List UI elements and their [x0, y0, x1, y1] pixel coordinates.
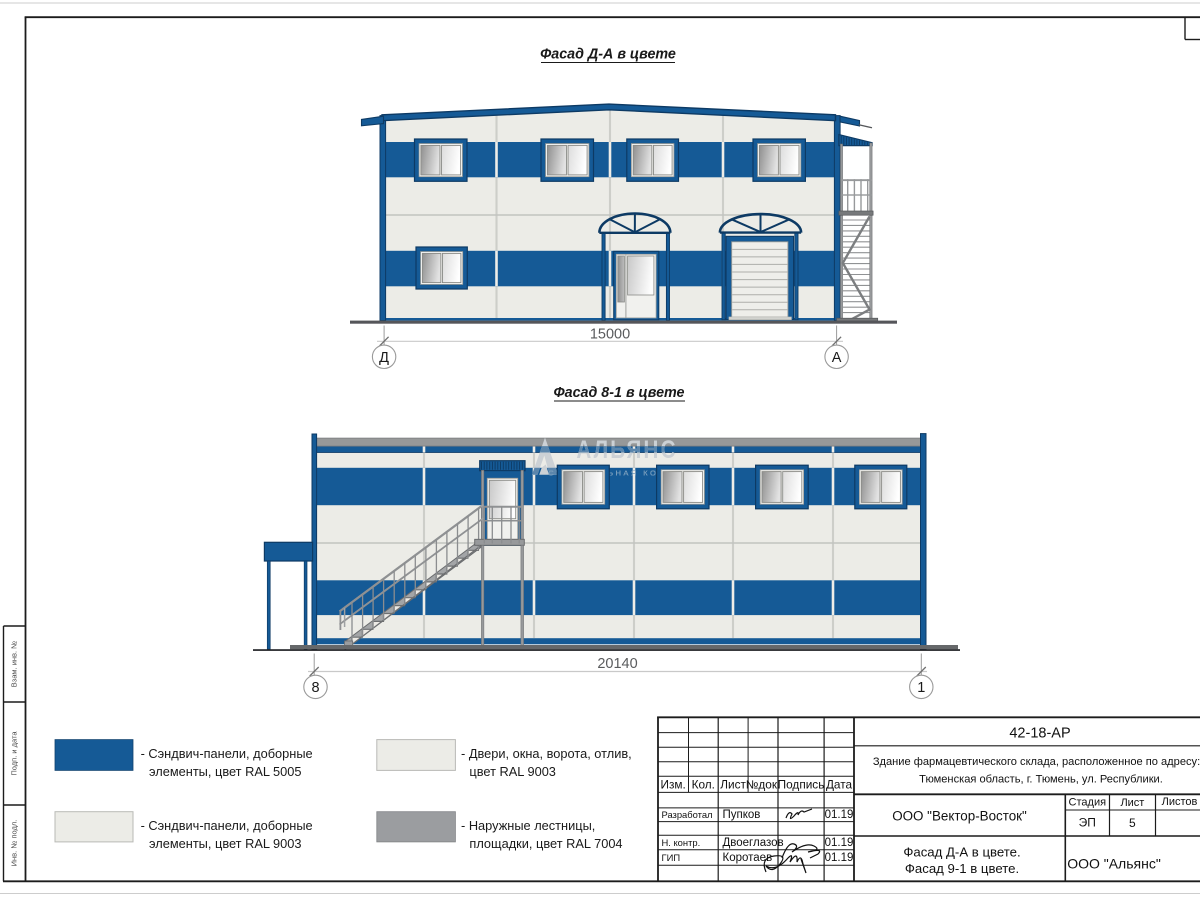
svg-text:01.19: 01.19: [825, 852, 854, 864]
svg-text:Фасад Д-А в цвете: Фасад Д-А в цвете: [540, 47, 676, 63]
svg-text:Инв. № подл.: Инв. № подл.: [9, 820, 18, 867]
svg-text:Листов: Листов: [1162, 796, 1198, 808]
svg-text:элементы, цвет RAL 9003: элементы, цвет RAL 9003: [149, 836, 302, 851]
svg-text:- Двери, окна, ворота, отлив,: - Двери, окна, ворота, отлив,: [461, 746, 632, 761]
svg-text:Тюменская область, г. Тюмень,: Тюменская область, г. Тюмень, ул. Респуб…: [919, 774, 1163, 786]
svg-text:01.19: 01.19: [825, 837, 854, 849]
svg-text:Фасад Д-А в цвете.: Фасад Д-А в цвете.: [903, 845, 1020, 860]
svg-text:Лист: Лист: [1120, 797, 1144, 809]
svg-text:01.19: 01.19: [825, 809, 854, 821]
svg-text:1: 1: [917, 680, 925, 696]
svg-text:ООО "Альянс": ООО "Альянс": [1067, 856, 1161, 872]
svg-text:Взам. инв. №: Взам. инв. №: [9, 641, 18, 687]
svg-text:42-18-АР: 42-18-АР: [1009, 726, 1070, 742]
svg-text:15000: 15000: [590, 326, 630, 342]
svg-text:Разработал: Разработал: [662, 809, 713, 820]
svg-text:Подп. и дата: Подп. и дата: [9, 731, 18, 776]
svg-text:Кол.: Кол.: [692, 778, 715, 792]
svg-text:элементы, цвет RAL 5005: элементы, цвет RAL 5005: [149, 764, 302, 779]
svg-text:Пупков: Пупков: [723, 809, 761, 821]
svg-text:- Сэндвич-панели, доборные: - Сэндвич-панели, доборные: [141, 818, 313, 833]
svg-text:Здание фармацевтического склад: Здание фармацевтического склада, располо…: [873, 756, 1200, 768]
svg-text:5: 5: [1129, 816, 1136, 830]
svg-text:Лист: Лист: [720, 778, 746, 792]
svg-text:площадки, цвет RAL 7004: площадки, цвет RAL 7004: [469, 836, 622, 851]
svg-text:Н. контр.: Н. контр.: [662, 837, 701, 848]
svg-text:20140: 20140: [597, 656, 637, 672]
svg-text:ЭП: ЭП: [1079, 816, 1096, 830]
svg-text:Изм.: Изм.: [661, 778, 686, 792]
svg-text:Двоеглазов: Двоеглазов: [723, 837, 784, 849]
svg-text:Дата: Дата: [826, 778, 853, 792]
svg-text:- Наружные лестницы,: - Наружные лестницы,: [461, 818, 595, 833]
svg-text:№док.: №док.: [746, 778, 781, 792]
svg-text:Подпись: Подпись: [778, 778, 825, 792]
svg-text:Стадия: Стадия: [1069, 797, 1107, 809]
svg-text:Д: Д: [379, 350, 389, 366]
svg-text:Фасад 8-1 в цвете: Фасад 8-1 в цвете: [553, 385, 684, 401]
svg-text:8: 8: [311, 680, 319, 696]
svg-text:ООО "Вектор-Восток": ООО "Вектор-Восток": [892, 809, 1027, 824]
svg-text:А: А: [832, 350, 842, 366]
svg-text:ГИП: ГИП: [662, 852, 681, 863]
svg-text:Фасад 9-1 в цвете.: Фасад 9-1 в цвете.: [905, 861, 1019, 876]
svg-text:цвет RAL 9003: цвет RAL 9003: [469, 764, 556, 779]
svg-text:- Сэндвич-панели, доборные: - Сэндвич-панели, доборные: [141, 746, 313, 761]
